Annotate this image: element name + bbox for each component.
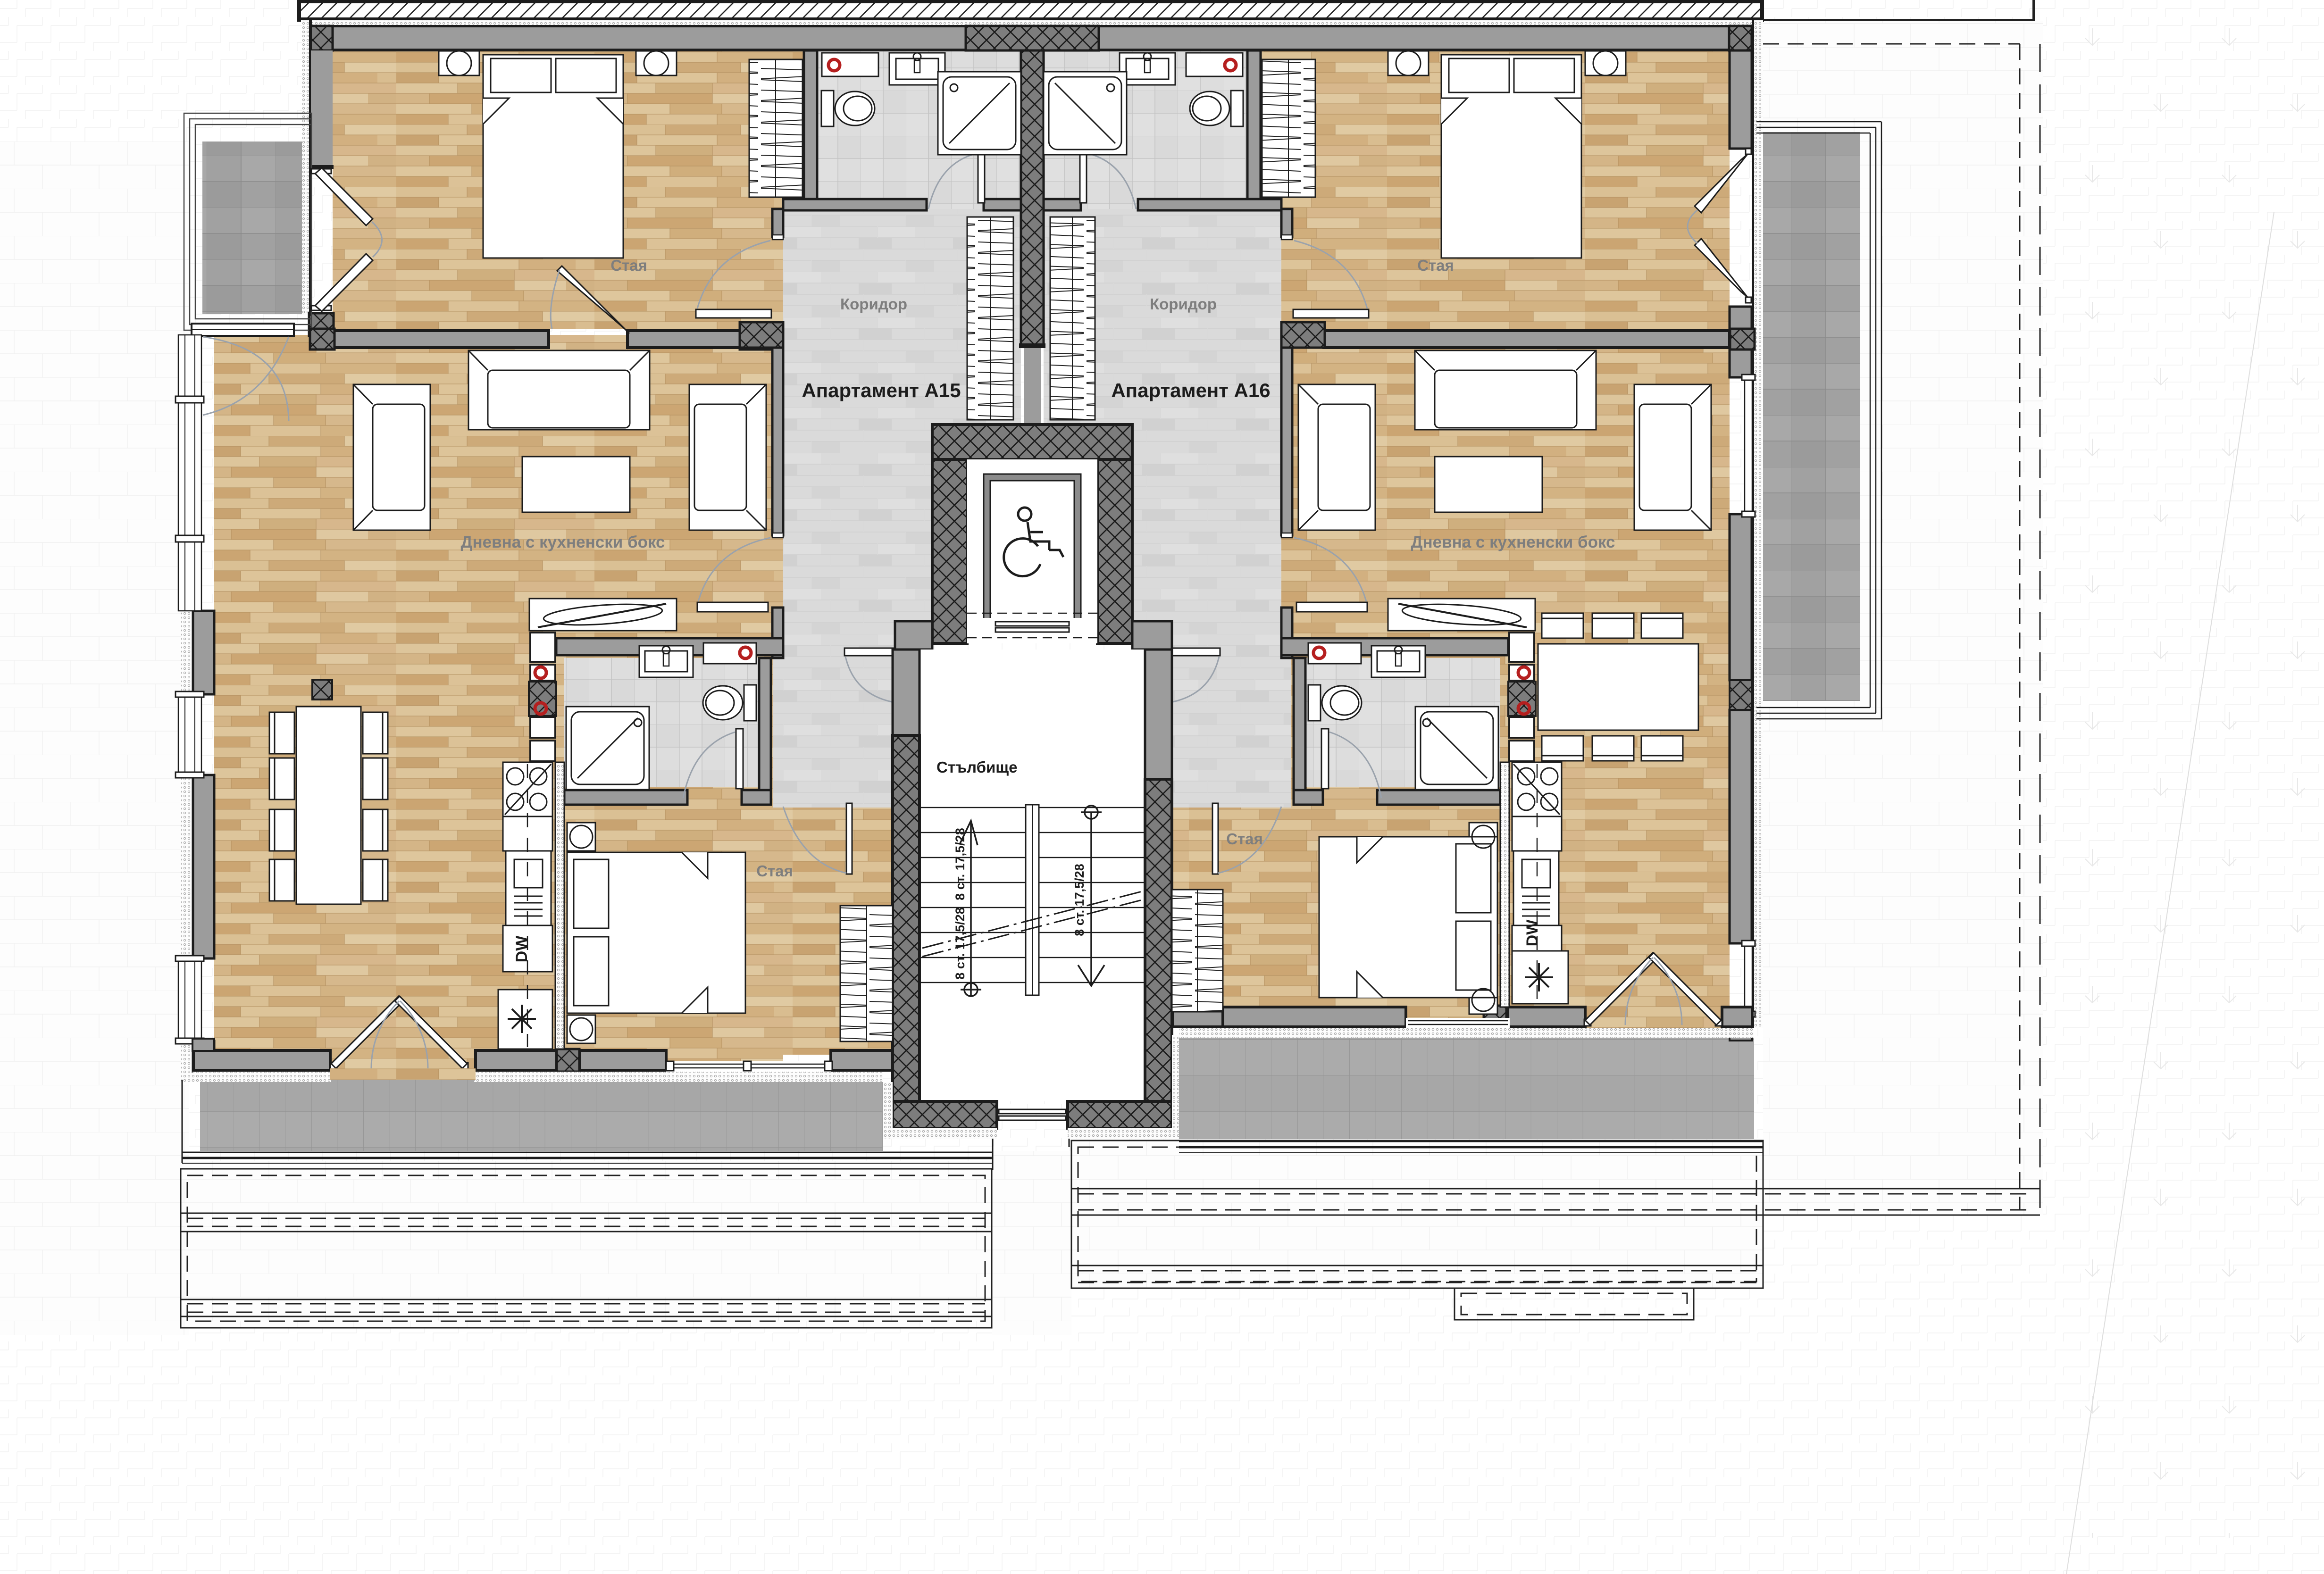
svg-text:Стая: Стая bbox=[610, 257, 647, 274]
svg-text:Апартамент А15: Апартамент А15 bbox=[802, 379, 961, 401]
svg-text:Стая: Стая bbox=[756, 862, 793, 880]
svg-text:Стая: Стая bbox=[1417, 257, 1454, 274]
svg-text:8 ст. 17,5/28: 8 ст. 17,5/28 bbox=[953, 828, 967, 900]
svg-text:Апартамент А16: Апартамент А16 bbox=[1111, 379, 1270, 401]
svg-text:8 ст. 17,5/28: 8 ст. 17,5/28 bbox=[953, 907, 967, 979]
svg-text:DW: DW bbox=[1523, 919, 1541, 947]
svg-text:Стая: Стая bbox=[1226, 830, 1263, 848]
svg-text:Стълбище: Стълбище bbox=[936, 758, 1017, 776]
svg-text:8 ст. 17,5/28: 8 ст. 17,5/28 bbox=[1072, 864, 1087, 936]
svg-text:DW: DW bbox=[513, 935, 531, 963]
svg-text:Дневна с кухненски бокс: Дневна с кухненски бокс bbox=[461, 533, 665, 551]
svg-text:Коридор: Коридор bbox=[1150, 295, 1217, 313]
svg-text:Коридор: Коридор bbox=[840, 295, 907, 313]
svg-text:Дневна с кухненски бокс: Дневна с кухненски бокс bbox=[1411, 533, 1615, 551]
